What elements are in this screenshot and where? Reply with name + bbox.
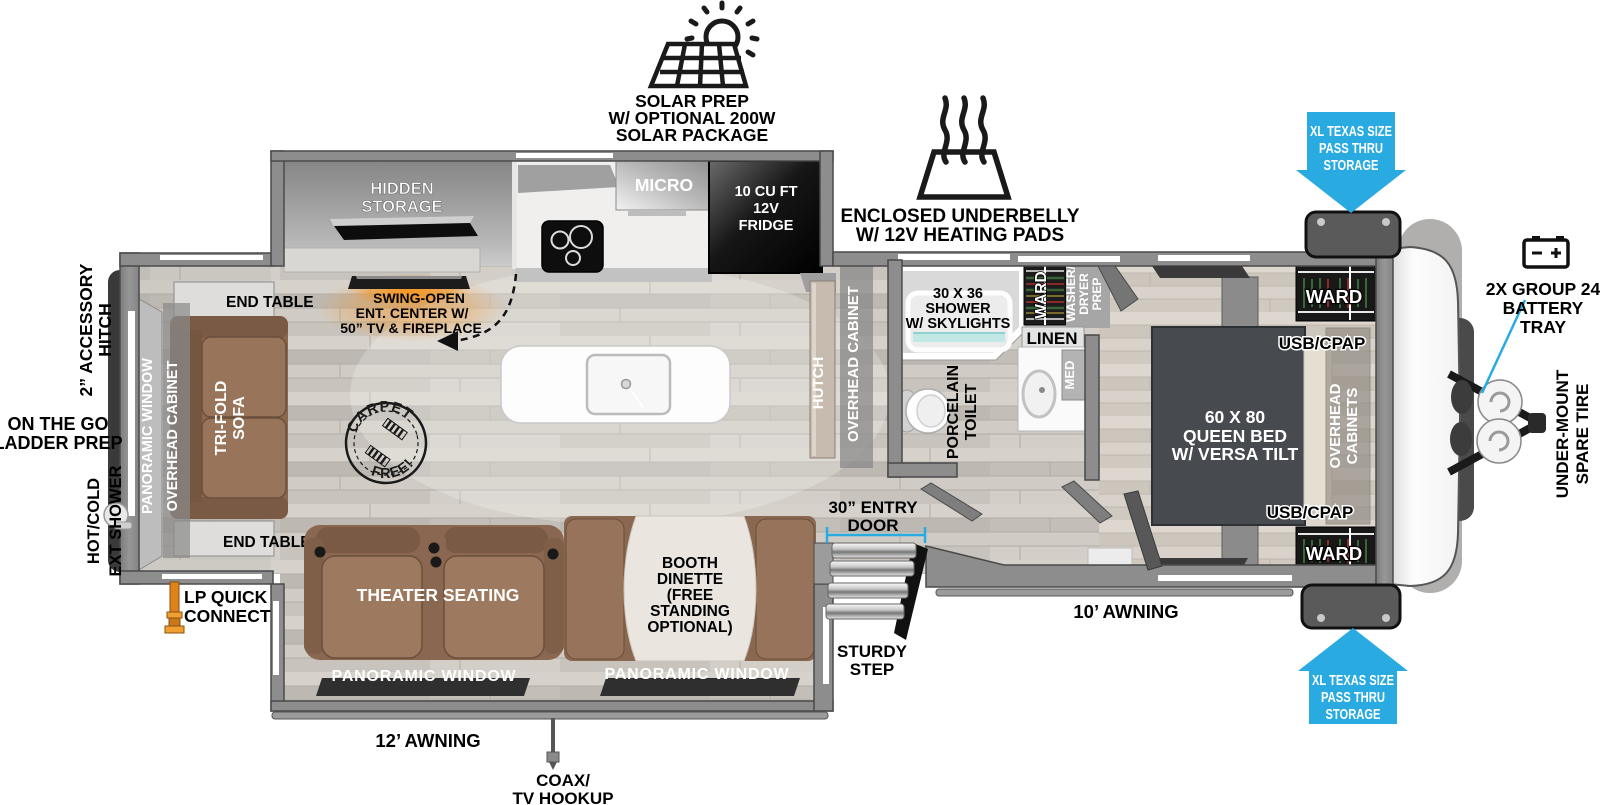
svg-text:STEP: STEP [850,660,894,679]
svg-text:SOFA: SOFA [231,396,248,440]
svg-text:12V: 12V [753,201,779,217]
svg-text:MICRO: MICRO [635,175,693,195]
svg-text:10 CU FT: 10 CU FT [735,184,798,200]
svg-text:XL TEXAS SIZE: XL TEXAS SIZE [1312,673,1394,689]
svg-text:HUTCH: HUTCH [810,357,827,410]
svg-text:TOILET: TOILET [963,383,980,440]
svg-text:PANORAMIC WINDOW: PANORAMIC WINDOW [140,358,156,514]
svg-text:PANORAMIC WINDOW: PANORAMIC WINDOW [605,666,790,683]
svg-text:(FREE: (FREE [667,587,714,604]
svg-text:CABINETS: CABINETS [1344,388,1361,465]
svg-text:END TABLE: END TABLE [226,294,314,311]
svg-text:OVERHEAD: OVERHEAD [1327,383,1344,468]
svg-text:50” TV & FIREPLACE: 50” TV & FIREPLACE [340,320,482,336]
svg-text:PANORAMIC WINDOW: PANORAMIC WINDOW [332,668,517,685]
svg-text:BATTERY: BATTERY [1503,298,1584,318]
svg-text:PREP: PREP [1090,278,1104,311]
svg-text:UNDER-MOUNT: UNDER-MOUNT [1553,369,1572,498]
svg-text:OVERHEAD CABINET: OVERHEAD CABINET [165,361,181,512]
svg-text:EXT SHOWER: EXT SHOWER [107,465,125,576]
svg-text:USB/CPAP: USB/CPAP [1279,334,1366,353]
svg-text:LINEN: LINEN [1027,329,1078,348]
svg-text:ON THE GO: ON THE GO [7,414,108,434]
svg-text:MED: MED [1062,361,1077,390]
svg-text:TRAY: TRAY [1520,317,1566,337]
svg-text:COAX/: COAX/ [536,771,590,790]
svg-text:STORAGE: STORAGE [361,198,442,216]
svg-text:SWING-OPEN: SWING-OPEN [373,290,465,306]
svg-text:WARD: WARD [1306,543,1363,564]
svg-text:OPTIONAL): OPTIONAL) [647,619,732,636]
svg-text:THEATER SEATING: THEATER SEATING [357,585,520,605]
svg-text:W/ SKYLIGHTS: W/ SKYLIGHTS [906,316,1011,332]
svg-text:SPARE TIRE: SPARE TIRE [1573,384,1592,485]
svg-text:SOLAR PACKAGE: SOLAR PACKAGE [616,125,768,145]
svg-text:END TABLE: END TABLE [223,534,311,551]
svg-text:QUEEN BED: QUEEN BED [1183,426,1287,446]
svg-text:ENT. CENTER W/: ENT. CENTER W/ [356,305,469,321]
svg-text:TRI-FOLD: TRI-FOLD [213,381,230,456]
svg-text:HIDDEN: HIDDEN [370,180,433,198]
svg-text:HITCH: HITCH [95,303,115,356]
svg-text:30” ENTRY: 30” ENTRY [828,498,918,517]
svg-text:10’ AWNING: 10’ AWNING [1073,601,1178,622]
svg-text:STANDING: STANDING [650,603,730,620]
svg-text:STORAGE: STORAGE [1326,707,1381,723]
svg-text:STURDY: STURDY [837,642,908,661]
svg-text:60 X 80: 60 X 80 [1205,407,1266,427]
svg-text:DINETTE: DINETTE [657,571,723,588]
svg-text:LP QUICK: LP QUICK [184,587,268,607]
svg-text:SHOWER: SHOWER [925,301,991,317]
svg-text:PASS THRU: PASS THRU [1321,690,1385,706]
svg-text:CONNECT: CONNECT [184,606,271,626]
svg-text:TV HOOKUP: TV HOOKUP [512,789,613,805]
svg-text:HOT/COLD: HOT/COLD [85,478,103,564]
svg-text:W/ 12V HEATING PADS: W/ 12V HEATING PADS [856,225,1064,246]
svg-text:ENCLOSED UNDERBELLY: ENCLOSED UNDERBELLY [841,206,1080,227]
svg-text:2X GROUP 24: 2X GROUP 24 [1486,279,1600,299]
svg-text:BOOTH: BOOTH [662,555,718,572]
svg-text:2” ACCESSORY: 2” ACCESSORY [76,263,96,396]
svg-text:OVERHEAD CABINET: OVERHEAD CABINET [845,286,862,442]
svg-text:FRIDGE: FRIDGE [739,218,794,234]
svg-text:DRYER: DRYER [1077,273,1091,315]
svg-text:PORCELAIN: PORCELAIN [945,365,962,459]
svg-text:XL TEXAS SIZE: XL TEXAS SIZE [1310,124,1392,140]
svg-text:USB/CPAP: USB/CPAP [1267,503,1354,522]
svg-text:STORAGE: STORAGE [1324,158,1379,174]
svg-text:DOOR: DOOR [848,516,899,535]
svg-text:PASS THRU: PASS THRU [1319,141,1383,157]
svg-text:12’ AWNING: 12’ AWNING [375,730,480,751]
svg-text:WARD: WARD [1033,271,1050,318]
svg-text:30 X 36: 30 X 36 [933,286,983,302]
svg-text:LADDER PREP: LADDER PREP [0,433,123,453]
svg-text:W/ VERSA TILT: W/ VERSA TILT [1172,444,1299,464]
svg-text:WARD: WARD [1306,286,1363,307]
svg-text:WASHER/: WASHER/ [1064,265,1078,322]
